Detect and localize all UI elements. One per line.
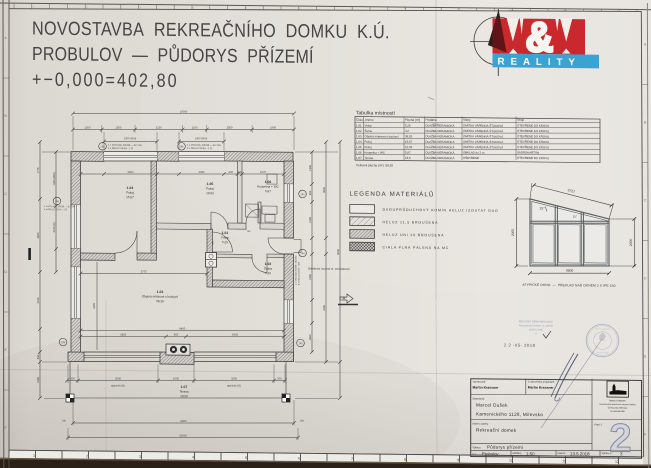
svg-text:1000: 1000 (308, 334, 312, 341)
svg-text:3800: 3800 (322, 186, 326, 193)
svg-text:10,93: 10,93 (206, 191, 214, 195)
svg-text:Půdorys přízemí: Půdorys přízemí (487, 445, 524, 450)
svg-text:-5-: -5- (535, 332, 538, 335)
svg-text:5,25: 5,25 (405, 124, 411, 128)
svg-text:2000: 2000 (629, 239, 633, 247)
svg-text:DOŠLO DNE: DOŠLO DNE (529, 328, 543, 331)
svg-text:8: 8 (404, 458, 406, 462)
svg-text:Rekreační domek: Rekreační domek (476, 427, 517, 432)
svg-text:194: 194 (301, 252, 306, 255)
svg-text:195: 195 (180, 145, 185, 148)
svg-text:Probulov: Probulov (482, 451, 499, 456)
svg-text:OBKLAD do 2 m: OBKLAD do 2 m (463, 150, 485, 154)
svg-text:NOVOSTAVBA REKREAČNÍHO DOMKU: NOVOSTAVBA REKREAČNÍHO DOMKU K.Ú. (32, 16, 390, 42)
svg-text:3600: 3600 (231, 376, 237, 380)
svg-text:Výkres:: Výkres: (473, 445, 482, 449)
svg-text:Martin Krassner: Martin Krassner (473, 385, 499, 389)
svg-text:200: 200 (300, 419, 305, 422)
svg-text:OMÍTKA VÁPENNÁ ŠTUKOVÁ: OMÍTKA VÁPENNÁ ŠTUKOVÁ (463, 128, 503, 133)
svg-text:Šatna: Šatna (264, 266, 272, 271)
svg-text:k.ú.:: k.ú.: (473, 452, 478, 456)
svg-text:4,20: 4,20 (265, 271, 271, 275)
svg-text:7: 7 (351, 457, 353, 461)
svg-text:3600: 3600 (115, 376, 121, 380)
svg-text:500: 500 (36, 354, 40, 359)
svg-text:900: 900 (229, 170, 234, 174)
svg-text:A: A (343, 295, 346, 300)
svg-text:DLAŽBA KERAMICKÁ: DLAŽBA KERAMICKÁ (426, 144, 455, 149)
svg-text:DLAŽBA KERAMICKÁ: DLAŽBA KERAMICKÁ (426, 139, 455, 144)
svg-text:Číslo: Číslo (356, 117, 363, 122)
svg-text:10000: 10000 (179, 433, 187, 437)
svg-text:OMÍTKA VÁPENNÁ ŠTUKOVÁ: OMÍTKA VÁPENNÁ ŠTUKOVÁ (463, 144, 503, 149)
svg-text:Celková plocha (m²) 98,82: Celková plocha (m²) 98,82 (356, 163, 393, 167)
svg-text:1 x IZOLACE 20/238 - dl.2250: 1 x IZOLACE 20/238 - dl.2250 (295, 255, 298, 285)
svg-text:OTEVŘENÉ DO KROVU: OTEVŘENÉ DO KROVU (517, 133, 549, 138)
svg-text:Obytná místnost s kuchyní: Obytná místnost s kuchyní (365, 134, 399, 138)
svg-text:13.5.2018: 13.5.2018 (570, 451, 590, 456)
svg-text:5775: 5775 (141, 269, 147, 273)
svg-text:1.04: 1.04 (127, 186, 134, 190)
svg-text:2000: 2000 (128, 170, 134, 174)
svg-text:1300: 1300 (308, 164, 312, 171)
svg-text:Vstup: Vstup (221, 236, 229, 240)
svg-text:2150 (0): 2150 (0) (52, 222, 56, 232)
svg-text:Tabulka místností: Tabulka místností (356, 110, 396, 116)
svg-text:+−0,000=402,80: +−0,000=402,80 (32, 68, 179, 91)
svg-text:1550: 1550 (36, 376, 40, 383)
svg-text:Martin Krassner: Martin Krassner (528, 385, 554, 389)
svg-text:Podlaha: Podlaha (426, 118, 437, 122)
svg-text:Masarykovo náměstí 13, 398 06: Masarykovo náměstí 13, 398 06 (519, 324, 554, 327)
svg-text:Odvětrání nucené el. ventiláto: Odvětrání nucené el. ventilátorem (308, 267, 351, 271)
svg-text:193: 193 (299, 342, 304, 345)
svg-text:Datum:: Datum: (558, 451, 567, 455)
svg-text:4 x HELUZ 23,8 b - 175: 4 x HELUZ 23,8 b - 175 (187, 147, 213, 150)
svg-text:Pokoj: Pokoj (365, 140, 373, 144)
svg-text:193: 193 (61, 341, 66, 344)
svg-text:MĚSTO MIROVICE: MĚSTO MIROVICE (595, 328, 611, 331)
svg-text:OKRES PÍSEK: OKRES PÍSEK (597, 351, 609, 354)
svg-text:HELUZ UNI 30 BROUŠENÁ: HELUZ UNI 30 BROUŠENÁ (383, 232, 445, 238)
svg-text:Koupelna + WC: Koupelna + WC (365, 151, 385, 155)
svg-text:1.02: 1.02 (265, 262, 272, 266)
svg-text:OMÍTKA VÁPENNÁ ŠTUKOVÁ: OMÍTKA VÁPENNÁ ŠTUKOVÁ (463, 122, 503, 127)
svg-text:4283: 4283 (120, 332, 126, 336)
svg-text:&: & (526, 13, 554, 61)
svg-text:Zodpovědný projektant:: Zodpovědný projektant: (528, 379, 555, 383)
svg-text:1075: 1075 (260, 170, 266, 174)
svg-text:1.05: 1.05 (207, 182, 214, 186)
svg-text:18,5: 18,5 (405, 156, 411, 160)
svg-text:195: 195 (55, 200, 60, 203)
svg-text:3: 3 (139, 455, 141, 459)
svg-text:4 x HELUZ 23,8 b - 175: 4 x HELUZ 23,8 b - 175 (108, 147, 134, 150)
svg-text:5,87: 5,87 (405, 151, 411, 155)
svg-text:194: 194 (301, 193, 306, 196)
svg-text:Plocha [m²]: Plocha [m²] (405, 118, 420, 122)
svg-text:905: 905 (174, 332, 179, 336)
svg-text:1900: 1900 (270, 125, 276, 129)
svg-text:1300 (850): 1300 (850) (52, 172, 56, 185)
svg-text:ATYPICKÉ OKNO — PŘEKLAD NAD: ATYPICKÉ OKNO — PŘEKLAD NAD OKNEM 2 X IP… (522, 282, 615, 288)
svg-text:15°: 15° (573, 214, 578, 218)
svg-text:HELUZ 11,5 BROUŠENÁ: HELUZ 11,5 BROUŠENÁ (383, 219, 439, 225)
svg-text:5,25: 5,25 (222, 240, 228, 244)
svg-text:DLAŽBA KERAMICKÁ: DLAŽBA KERAMICKÁ (426, 133, 455, 138)
svg-text:2065: 2065 (511, 229, 515, 237)
svg-text:1:50: 1:50 (526, 451, 535, 456)
svg-text:15,57: 15,57 (126, 195, 134, 199)
svg-text:4302: 4302 (232, 332, 238, 336)
svg-text:PROBULOV — PŮDORYS PŘÍZEMÍ: PROBULOV — PŮDORYS PŘÍZEMÍ (32, 42, 314, 68)
svg-text:OMÍTKA VÁPENNÁ ŠTUKOVÁ: OMÍTKA VÁPENNÁ ŠTUKOVÁ (463, 139, 503, 144)
svg-text:10000: 10000 (180, 109, 188, 113)
svg-text:1500: 1500 (115, 125, 121, 129)
svg-text:10: 10 (509, 459, 513, 463)
svg-text:600: 600 (308, 190, 312, 195)
svg-text:4,2: 4,2 (405, 129, 409, 133)
svg-text:Martin Krassner: Martin Krassner (609, 399, 625, 402)
svg-text:1.01: 1.01 (222, 231, 229, 235)
svg-text:Měřítko:: Měřítko: (513, 451, 523, 455)
svg-text:2150: 2150 (156, 125, 162, 129)
svg-text:2: 2 (86, 454, 88, 458)
svg-text:1.06: 1.06 (356, 150, 362, 154)
svg-text:atypické (O): atypické (O) (111, 383, 125, 387)
svg-text:1300 (850): 1300 (850) (124, 136, 137, 140)
svg-text:Čechova 53, Milevsko: Čechova 53, Milevsko (608, 406, 628, 409)
svg-text:6: 6 (298, 457, 300, 461)
svg-text:36,26: 36,26 (405, 134, 413, 138)
svg-text:4200: 4200 (322, 304, 326, 311)
svg-text:Strop: Strop (517, 118, 525, 122)
svg-text:DLAŽBA KERAMICKÁ: DLAŽBA KERAMICKÁ (426, 155, 455, 160)
svg-text:1 x IZOLACE 20/238 → dl.1750: 1 x IZOLACE 20/238 → dl.1750 (44, 205, 76, 208)
svg-text:OTEVŘENÉ DO KROVU: OTEVŘENÉ DO KROVU (517, 155, 549, 160)
svg-text:OTEVŘENÉ DO KROVU: OTEVŘENÉ DO KROVU (517, 122, 549, 127)
svg-text:9400: 9400 (179, 326, 185, 330)
svg-text:Jméno: Jméno (365, 118, 374, 122)
svg-text:195: 195 (101, 145, 106, 148)
svg-text:Stěny: Stěny (463, 118, 471, 122)
svg-text:Koupelna + WC: Koupelna + WC (257, 184, 280, 188)
svg-text:4: 4 (192, 455, 194, 459)
svg-text:Pokoj: Pokoj (365, 145, 373, 149)
svg-text:Obytná místnost s kuchyní: Obytná místnost s kuchyní (142, 294, 179, 298)
svg-text:Pokoj: Pokoj (126, 191, 134, 195)
svg-text:1.04: 1.04 (356, 140, 362, 144)
svg-text:F: F (5, 426, 7, 430)
svg-text:5: 5 (245, 456, 247, 460)
svg-text:Vypracoval:: Vypracoval: (473, 379, 487, 383)
svg-text:OTEVŘENÉ DO KROVU: OTEVŘENÉ DO KROVU (517, 144, 549, 149)
svg-text:1.03: 1.03 (356, 134, 362, 138)
svg-text:1600: 1600 (173, 376, 179, 380)
svg-text:1100: 1100 (192, 125, 198, 129)
svg-text:1.07: 1.07 (181, 385, 188, 389)
svg-text:OŠETŘENÉ: OŠETŘENÉ (463, 155, 479, 160)
svg-text:3600: 3600 (566, 269, 574, 273)
svg-text:1.07: 1.07 (356, 156, 362, 160)
svg-text:5,87: 5,87 (265, 189, 271, 193)
svg-text:1500: 1500 (308, 216, 312, 223)
svg-text:Vstup: Vstup (365, 124, 373, 128)
svg-text:1850: 1850 (308, 273, 312, 280)
svg-text:3050: 3050 (199, 170, 205, 174)
svg-text:200: 200 (62, 419, 67, 422)
svg-text:11: 11 (562, 459, 566, 463)
svg-text:1300 (850): 1300 (850) (195, 136, 208, 140)
svg-text:9: 9 (457, 458, 459, 462)
svg-text:2 2 -05- 2018: 2 2 -05- 2018 (504, 342, 536, 347)
svg-text:Stavebník:: Stavebník: (473, 396, 486, 400)
svg-text:1775: 1775 (36, 167, 40, 174)
svg-text:36,26: 36,26 (156, 299, 164, 303)
svg-text:atypické (O): atypické (O) (227, 383, 241, 387)
svg-text:Terasa: Terasa (179, 390, 189, 394)
svg-text:1.01: 1.01 (356, 123, 362, 127)
svg-text:1: 1 (33, 454, 35, 458)
svg-text:Autorizovaný technik pro pozem: Autorizovaný technik pro pozemní stavby (599, 403, 635, 406)
svg-text:OTEVŘENÉ DO KROVU: OTEVŘENÉ DO KROVU (517, 128, 549, 133)
svg-text:Název stavby:: Název stavby: (473, 421, 490, 425)
svg-text:6000: 6000 (336, 248, 340, 255)
svg-text:Terasa: Terasa (365, 156, 374, 160)
svg-text:OMÍTKA VÁPENNÁ ŠTUKOVÁ: OMÍTKA VÁPENNÁ ŠTUKOVÁ (463, 133, 503, 138)
svg-text:1.02: 1.02 (356, 129, 362, 133)
svg-text:15°: 15° (539, 206, 545, 210)
svg-text:4 x HELUZ 23,8 b - 225: 4 x HELUZ 23,8 b - 225 (299, 261, 301, 285)
svg-text:10,93: 10,93 (405, 145, 413, 149)
svg-text:15,57: 15,57 (405, 140, 413, 144)
svg-text:2150: 2150 (36, 297, 40, 304)
svg-text:OTEVŘENÉ DO KROVU: OTEVŘENÉ DO KROVU (517, 139, 549, 144)
svg-text:1.05: 1.05 (356, 145, 362, 149)
svg-text:Šatna: Šatna (365, 128, 373, 133)
svg-text:1300: 1300 (84, 125, 90, 129)
svg-text:2: 2 (609, 416, 631, 460)
svg-text:120: 120 (238, 170, 243, 174)
svg-text:4 x HELUZ 23,8 b - 175: 4 x HELUZ 23,8 b - 175 (44, 209, 68, 211)
svg-text:4325: 4325 (92, 302, 96, 309)
svg-text:Kamenického 1128, Milevsko: Kamenického 1128, Milevsko (476, 411, 543, 417)
svg-text:3825: 3825 (36, 232, 40, 239)
svg-text:18,50: 18,50 (180, 394, 188, 398)
svg-text:LEGENDA MATERIÁLŮ: LEGENDA MATERIÁLŮ (350, 190, 435, 198)
svg-text:Pokoj: Pokoj (206, 187, 214, 191)
svg-text:F: F (644, 432, 646, 436)
svg-text:SÁDROKARTON: SÁDROKARTON (517, 150, 539, 154)
svg-text:500: 500 (70, 376, 75, 380)
svg-text:DLAŽBA KERAMICKÁ: DLAŽBA KERAMICKÁ (426, 122, 455, 127)
svg-text:Marcel Dušek: Marcel Dušek (476, 402, 508, 407)
svg-text:1.03: 1.03 (157, 290, 164, 294)
svg-text:CIHLA PLNÁ PÁLENÁ NA MC: CIHLA PLNÁ PÁLENÁ NA MC (383, 245, 450, 250)
svg-text:DLAŽBA KERAMICKÁ: DLAŽBA KERAMICKÁ (426, 149, 455, 154)
svg-text:tel. 606 060 606: tel. 606 060 606 (610, 410, 625, 413)
svg-text:Paré č.: Paré č. (595, 422, 603, 426)
svg-text:500: 500 (277, 376, 282, 380)
svg-text:2050: 2050 (226, 125, 232, 129)
svg-text:DLAŽBA KERAMICKÁ: DLAŽBA KERAMICKÁ (426, 128, 455, 133)
svg-text:9400: 9400 (181, 419, 187, 423)
svg-text:1.06: 1.06 (265, 180, 272, 184)
